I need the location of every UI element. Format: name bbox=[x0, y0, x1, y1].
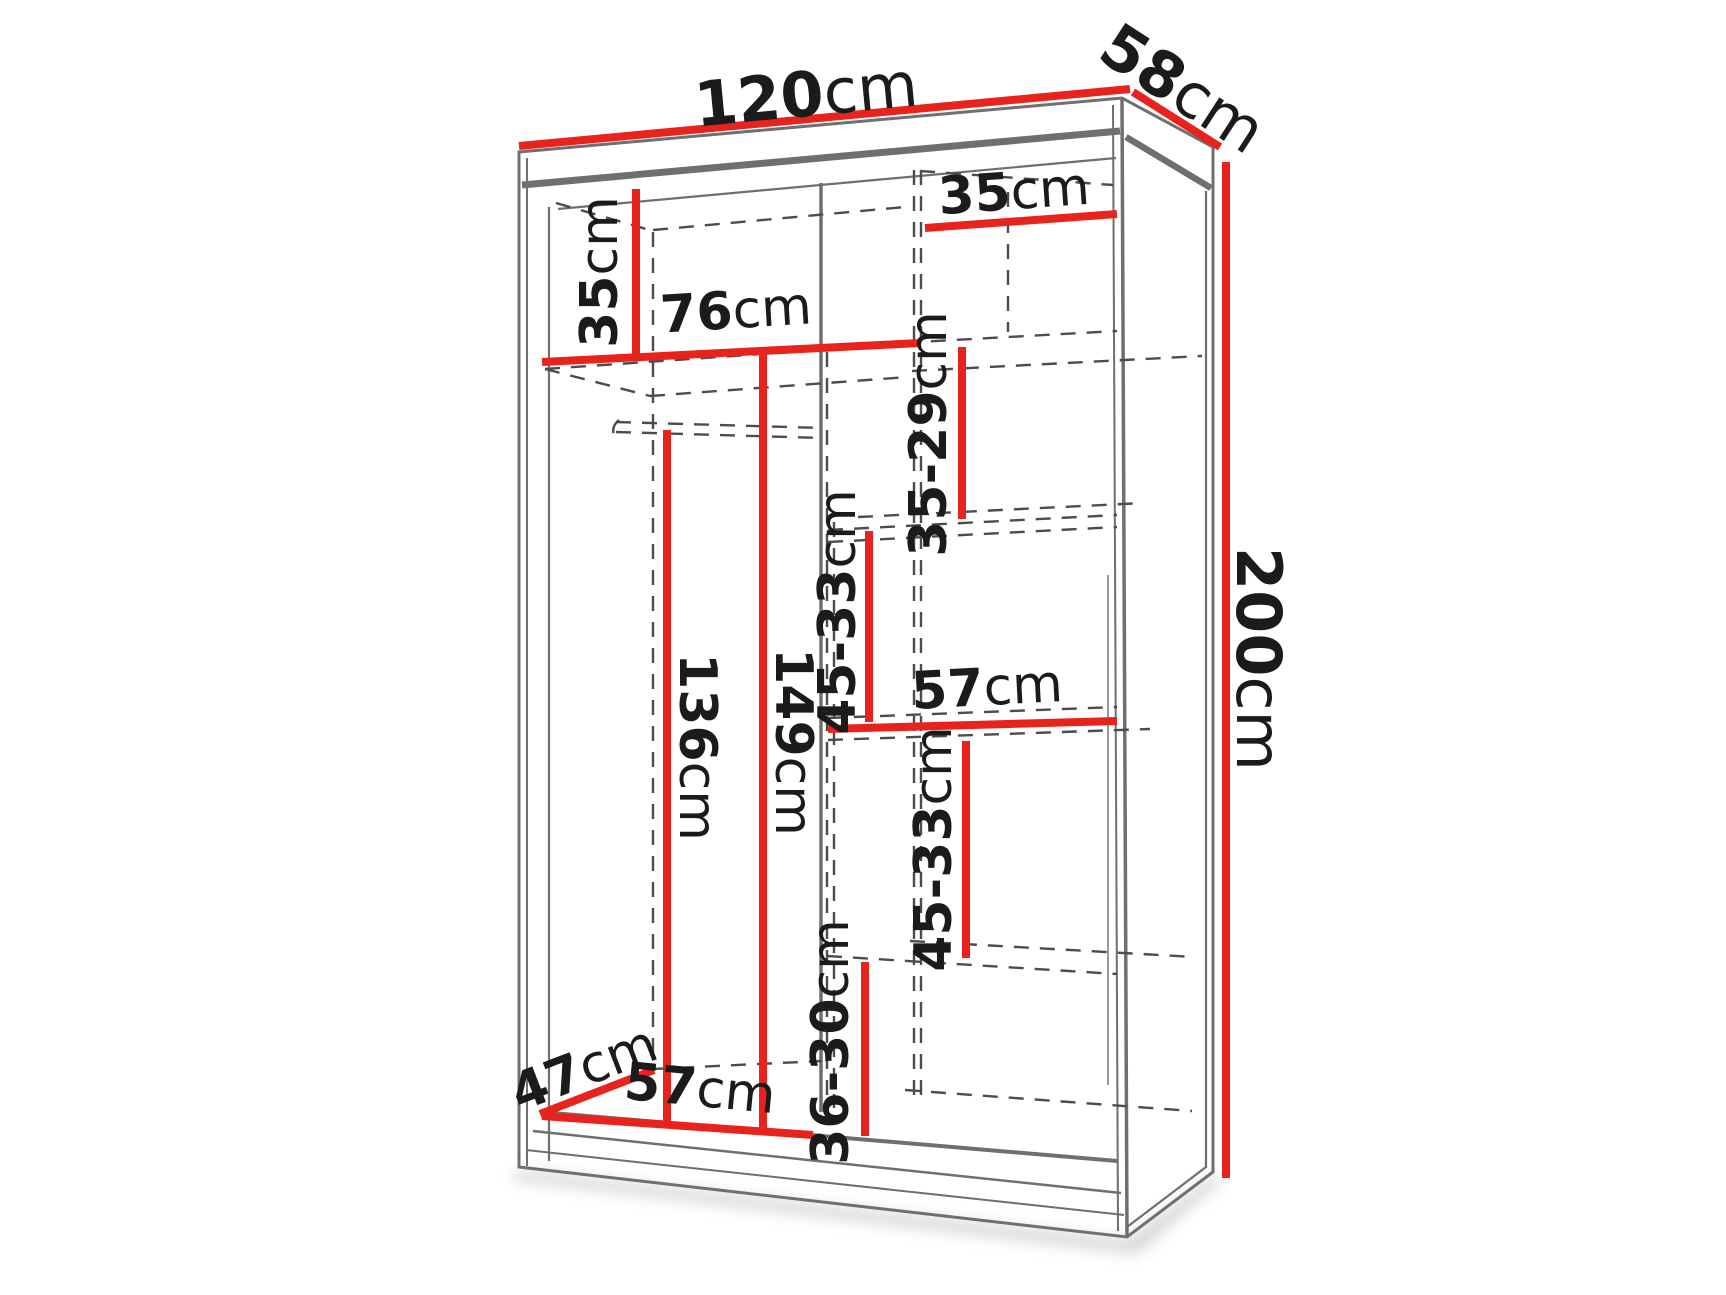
label-57cm-bottom: 57cm bbox=[622, 1052, 779, 1126]
label-58cm: 58cm bbox=[1087, 8, 1278, 168]
hanging-rod-line-top bbox=[616, 422, 822, 428]
label-35-29cm: 35-29cm bbox=[899, 311, 959, 557]
label-76cm: 76cm bbox=[658, 276, 813, 345]
cabinet-shadow bbox=[513, 1170, 1221, 1254]
label-35cm-left: 35cm bbox=[570, 196, 630, 348]
ceiling-back-edge-left bbox=[653, 207, 905, 230]
label-136cm: 136cm bbox=[667, 653, 727, 841]
label-36-30cm: 36-30cm bbox=[801, 919, 861, 1165]
right-floor-back-edge bbox=[905, 1090, 1192, 1111]
front-right-edge-inner bbox=[1113, 105, 1118, 1231]
label-57cm-mid: 57cm bbox=[910, 654, 1065, 722]
label-45-33cm-lower: 45-33cm bbox=[904, 726, 964, 972]
diagram-page: 120cm 58cm 200cm 35cm 76cm 35cm 35-29cm … bbox=[0, 0, 1726, 1295]
label-120cm: 120cm bbox=[691, 47, 921, 141]
left-shelf-back-edge bbox=[650, 377, 908, 396]
label-200cm: 200cm bbox=[1223, 547, 1296, 771]
label-149cm: 149cm bbox=[763, 648, 823, 836]
wardrobe-dimension-diagram: 120cm 58cm 200cm 35cm 76cm 35cm 35-29cm … bbox=[0, 0, 1726, 1295]
side-top-edge bbox=[1126, 137, 1211, 188]
hanging-rod-line-bottom bbox=[616, 432, 822, 438]
dimension-labels: 120cm 58cm 200cm 35cm 76cm 35cm 35-29cm … bbox=[502, 8, 1295, 1165]
shelf-d-front bbox=[827, 956, 1117, 974]
front-right-edge bbox=[1122, 99, 1127, 1236]
label-35cm-right: 35cm bbox=[936, 157, 1091, 227]
dimension-line-57cm-mid bbox=[828, 721, 1117, 729]
left-shelf-side-edge bbox=[545, 369, 650, 396]
interior-dashed-lines bbox=[545, 170, 1202, 1111]
